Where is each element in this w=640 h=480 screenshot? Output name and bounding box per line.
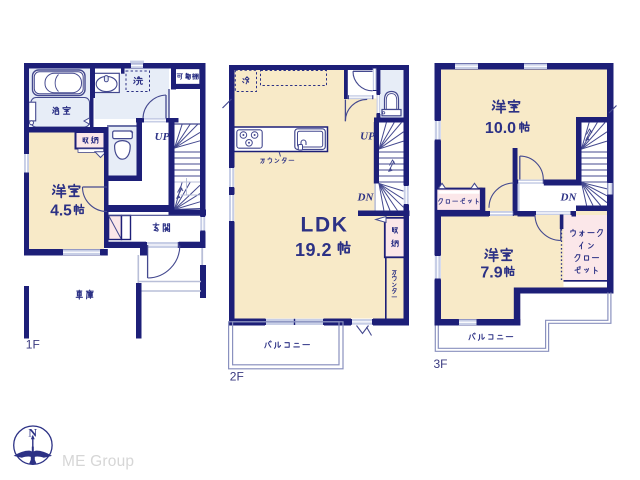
svg-text:DN: DN (357, 191, 375, 203)
svg-text:ME Group: ME Group (62, 453, 134, 470)
svg-text:1F: 1F (26, 338, 40, 352)
svg-text:UP: UP (155, 131, 170, 143)
svg-text:2F: 2F (230, 370, 244, 384)
svg-text:LDK: LDK (301, 214, 349, 237)
svg-text:19.2: 19.2 (295, 240, 332, 260)
svg-text:4.5: 4.5 (50, 203, 72, 220)
svg-text:7.9: 7.9 (480, 265, 502, 282)
svg-text:3F: 3F (433, 357, 447, 371)
svg-text:DN: DN (560, 191, 578, 203)
svg-text:UP: UP (360, 130, 375, 142)
svg-text:10.0: 10.0 (485, 120, 516, 137)
